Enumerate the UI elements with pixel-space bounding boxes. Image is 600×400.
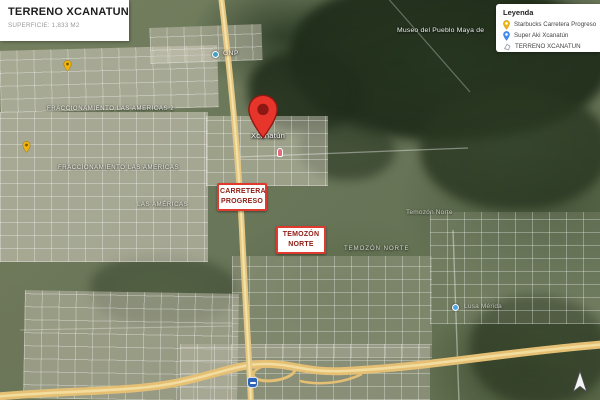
title-card: TERRENO XCANATUN SUPERFICIE: 1,833 M2 [0,0,129,41]
legend-title: Leyenda [503,8,597,17]
callout-line: NORTE [279,240,323,250]
map-label-fracc-americas: FRACCIONAMIENTO LAS AMERICAS [58,165,179,171]
satellite-map[interactable]: FRACCIONAMIENTO LAS AMERICAS 2 FRACCIONA… [0,0,600,400]
map-label-gnp: GNP [223,50,239,57]
highway-shield-icon [247,377,258,388]
callout-temozon-norte: TEMOZÓN NORTE [276,226,326,254]
yellow-pin-icon[interactable] [63,60,72,72]
callout-line: TEMOZÓN [279,230,323,240]
map-label-lusa-merida: Lusa Mérida [464,303,502,310]
blue-pin-icon [503,31,510,41]
yellow-pin-icon[interactable] [22,141,31,153]
yellow-pin-icon [503,20,510,30]
map-label-temozon-norte-small: Temozón Norte [406,209,453,216]
hacienda-poi-icon[interactable] [277,148,283,157]
legend-item-super-aki[interactable]: Super Aki Xcanatún [503,30,597,41]
lusa-merida-poi-icon[interactable] [452,304,459,311]
legend-item-starbucks[interactable]: Starbucks Carretera Progreso [503,19,597,30]
map-label-las-americas: LAS AMÉRICAS [137,202,188,208]
legend-item-label: Starbucks Carretera Progreso [514,21,596,28]
polygon-outline-icon [503,43,511,51]
legend-panel: Leyenda Starbucks Carretera Progreso Sup… [496,4,600,52]
map-label-museo: Museo del Pueblo Maya de [397,27,484,34]
callout-line: CARRETERA [220,187,264,197]
map-label-fracc-americas-2: FRACCIONAMIENTO LAS AMERICAS 2 [47,106,174,112]
legend-item-terreno[interactable]: TERRENO XCANATUN [503,41,597,52]
callout-line: PROGRESO [220,197,264,207]
red-pin-marker[interactable] [246,94,280,140]
legend-item-label: TERRENO XCANATUN [515,43,581,50]
gnp-poi-icon[interactable] [212,51,219,58]
page-title: TERRENO XCANATUN [8,6,122,18]
map-label-temozon-norte: TEMOZÓN NORTE [344,246,410,252]
callout-carretera-progreso: CARRETERA PROGRESO [217,183,267,211]
roads-layer [0,0,600,400]
surface-area-label: SUPERFICIE: 1,833 M2 [8,22,122,29]
north-arrow-icon [571,370,589,394]
legend-item-label: Super Aki Xcanatún [514,32,568,39]
